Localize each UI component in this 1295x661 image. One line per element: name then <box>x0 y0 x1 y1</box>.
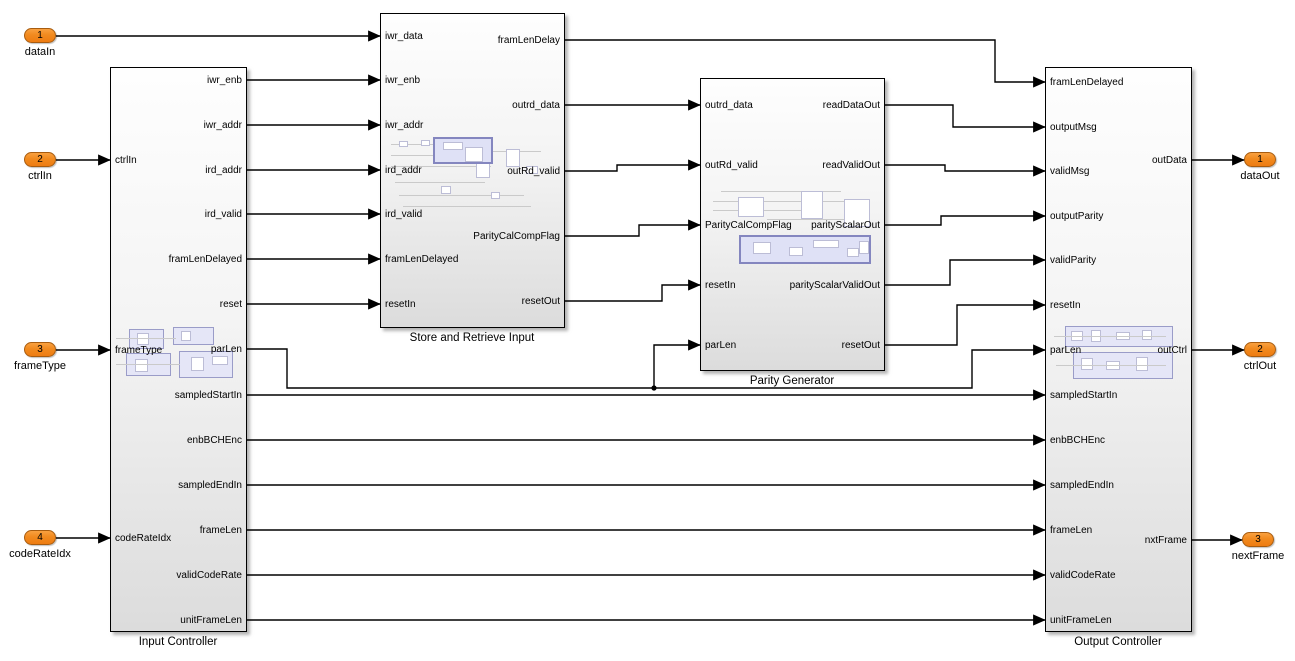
port-label-outrd_data: outrd_data <box>512 101 560 111</box>
block-caption-store-and-retrieve-input: Store and Retrieve Input <box>410 332 535 344</box>
inport-frameType[interactable]: 3 <box>24 342 56 357</box>
port-label-resetOut: resetOut <box>522 297 560 307</box>
port-label-parLen: parLen <box>211 345 242 355</box>
port-label-readValidOut: readValidOut <box>822 161 880 171</box>
wire-resetOut-to-parity[interactable] <box>565 285 700 301</box>
subsystem-preview-wire <box>116 364 180 365</box>
subsystem-preview-box <box>859 241 869 254</box>
port-label-outputMsg: outputMsg <box>1050 123 1097 133</box>
port-label-parityScalarValidOut: parityScalarValidOut <box>790 281 880 291</box>
block-caption-input-controller: Input Controller <box>139 636 218 648</box>
subsystem-preview-box <box>212 356 228 365</box>
port-label-resetIn: resetIn <box>705 281 736 291</box>
wire-outRd_valid[interactable] <box>565 165 700 171</box>
subsystem-preview-box <box>1136 357 1148 371</box>
port-label-iwr_addr: iwr_addr <box>385 121 423 131</box>
inport-label-dataIn: dataIn <box>25 46 56 58</box>
subsystem-preview-box <box>399 141 408 147</box>
inport-dataIn[interactable]: 1 <box>24 28 56 43</box>
outport-number: 1 <box>1257 155 1263 165</box>
port-label-unitFrameLen: unitFrameLen <box>1050 616 1112 626</box>
subsystem-preview-box <box>813 240 839 248</box>
port-label-ird_valid: ird_valid <box>205 210 242 220</box>
wire-ParityCalCompFlag[interactable] <box>565 225 700 236</box>
port-label-sampledEndIn: sampledEndIn <box>1050 481 1114 491</box>
subsystem-preview-wire <box>1054 336 1166 337</box>
port-label-outRd_valid: outRd_valid <box>705 161 758 171</box>
port-label-outrd_data: outrd_data <box>705 101 753 111</box>
subsystem-preview-box <box>181 331 191 341</box>
subsystem-preview-wire <box>403 206 531 207</box>
inport-number: 2 <box>37 155 43 165</box>
inport-ctrlIn[interactable]: 2 <box>24 152 56 167</box>
inport-label-frameType: frameType <box>14 360 66 372</box>
port-label-framLenDelay: framLenDelay <box>498 36 560 46</box>
subsystem-preview-box <box>137 333 149 345</box>
port-label-validMsg: validMsg <box>1050 167 1089 177</box>
subsystem-preview-wire <box>391 155 439 156</box>
subsystem-preview-wire <box>1056 365 1166 366</box>
port-label-outCtrl: outCtrl <box>1158 346 1187 356</box>
outport-dataOut[interactable]: 1 <box>1244 152 1276 167</box>
wire-junction-dot <box>651 385 656 390</box>
port-label-iwr_enb: iwr_enb <box>385 76 420 86</box>
outport-nextFrame[interactable]: 3 <box>1242 532 1274 547</box>
outport-label-ctrlOut: ctrlOut <box>1244 360 1276 372</box>
wire-framLenDelay[interactable] <box>565 40 1045 82</box>
wire-readValidOut[interactable] <box>885 165 1045 171</box>
outport-label-dataOut: dataOut <box>1240 170 1279 182</box>
port-label-frameType: frameType <box>115 346 162 356</box>
port-label-enbBCHEnc: enbBCHEnc <box>187 436 242 446</box>
port-label-resetIn: resetIn <box>385 300 416 310</box>
port-label-validParity: validParity <box>1050 256 1096 266</box>
wire-parityScalarOut[interactable] <box>885 216 1045 225</box>
subsystem-preview-wire <box>116 338 176 339</box>
block-parity-generator[interactable]: outrd_data outRd_valid ParityCalCompFlag… <box>700 78 885 371</box>
port-label-ird_addr: ird_addr <box>385 166 422 176</box>
port-label-outRd_valid: outRd_valid <box>507 167 560 177</box>
wire-parityScalarValidOut[interactable] <box>885 260 1045 285</box>
subsystem-preview-wire <box>713 201 858 202</box>
port-label-readDataOut: readDataOut <box>823 101 880 111</box>
port-label-sampledEndIn: sampledEndIn <box>178 481 242 491</box>
inport-number: 4 <box>37 533 43 543</box>
wire-resetOut-to-output-controller[interactable] <box>885 305 1045 345</box>
inport-label-codeRateIdx: codeRateIdx <box>9 548 71 560</box>
subsystem-preview-box <box>738 197 764 217</box>
wire-readDataOut[interactable] <box>885 105 1045 127</box>
subsystem-preview-box <box>789 247 803 256</box>
subsystem-preview-box <box>441 186 451 194</box>
subsystem-preview-wire <box>399 195 524 196</box>
block-caption-output-controller: Output Controller <box>1074 636 1162 648</box>
port-label-codeRateIdx: codeRateIdx <box>115 534 171 544</box>
outport-ctrlOut[interactable]: 2 <box>1244 342 1276 357</box>
subsystem-preview-box <box>847 248 859 257</box>
subsystem-preview-box <box>465 147 483 162</box>
inport-label-ctrlIn: ctrlIn <box>28 170 52 182</box>
block-output-controller[interactable]: framLenDelayed outputMsg validMsg output… <box>1045 67 1192 632</box>
port-label-reset: reset <box>220 300 242 310</box>
wire-parLen-to-parity-generator[interactable] <box>654 345 700 388</box>
subsystem-preview-box <box>801 191 823 219</box>
subsystem-preview-wire <box>395 182 485 183</box>
port-label-framLenDelayed: framLenDelayed <box>1050 78 1123 88</box>
port-label-iwr_data: iwr_data <box>385 32 423 42</box>
port-label-framLenDelayed: framLenDelayed <box>169 255 242 265</box>
port-label-iwr_addr: iwr_addr <box>204 121 242 131</box>
subsystem-preview-box <box>443 142 463 150</box>
port-label-unitFrameLen: unitFrameLen <box>180 616 242 626</box>
port-label-resetIn: resetIn <box>1050 301 1081 311</box>
subsystem-preview-box <box>135 359 148 372</box>
port-label-ParityCalCompFlag: ParityCalCompFlag <box>473 232 560 242</box>
port-label-frameLen: frameLen <box>1050 526 1092 536</box>
port-label-nxtFrame: nxtFrame <box>1145 536 1187 546</box>
port-label-parLen: parLen <box>1050 346 1081 356</box>
inport-number: 3 <box>37 345 43 355</box>
wire-parLen-trunk[interactable] <box>247 349 654 388</box>
subsystem-preview-box <box>1081 358 1093 370</box>
subsystem-preview-box <box>506 149 520 167</box>
port-label-resetOut: resetOut <box>842 341 880 351</box>
port-label-parityScalarOut: parityScalarOut <box>811 221 880 231</box>
port-label-sampledStartIn: sampledStartIn <box>1050 391 1117 401</box>
port-label-validCodeRate: validCodeRate <box>1050 571 1116 581</box>
subsystem-preview-box <box>1142 330 1152 340</box>
port-label-framLenDelayed: framLenDelayed <box>385 255 458 265</box>
subsystem-preview-box <box>421 140 430 146</box>
inport-number: 1 <box>37 31 43 41</box>
port-label-outData: outData <box>1152 156 1187 166</box>
subsystem-preview-highlight <box>433 137 493 164</box>
subsystem-preview-box <box>753 242 771 254</box>
inport-codeRateIdx[interactable]: 4 <box>24 530 56 545</box>
port-label-enbBCHEnc: enbBCHEnc <box>1050 436 1105 446</box>
port-label-outputParity: outputParity <box>1050 212 1103 222</box>
model-canvas: ctrlIn frameType codeRateIdx iwr_enb iwr… <box>0 0 1295 661</box>
outport-label-nextFrame: nextFrame <box>1232 550 1285 562</box>
port-label-frameLen: frameLen <box>200 526 242 536</box>
subsystem-preview-box <box>191 357 204 371</box>
port-label-validCodeRate: validCodeRate <box>176 571 242 581</box>
block-input-controller[interactable]: ctrlIn frameType codeRateIdx iwr_enb iwr… <box>110 67 247 632</box>
block-store-and-retrieve-input[interactable]: iwr_data iwr_enb iwr_addr ird_addr ird_v… <box>380 13 565 328</box>
subsystem-preview-box <box>491 192 500 199</box>
outport-number: 3 <box>1255 535 1261 545</box>
block-caption-parity-generator: Parity Generator <box>750 375 834 387</box>
port-label-sampledStartIn: sampledStartIn <box>175 391 242 401</box>
subsystem-preview-box <box>173 327 214 345</box>
port-label-parLen: parLen <box>705 341 736 351</box>
subsystem-preview-wire <box>721 191 841 192</box>
port-label-ctrlIn: ctrlIn <box>115 156 137 166</box>
port-label-iwr_enb: iwr_enb <box>207 76 242 86</box>
outport-number: 2 <box>1257 345 1263 355</box>
port-label-ird_addr: ird_addr <box>205 166 242 176</box>
port-label-ParityCalCompFlag: ParityCalCompFlag <box>705 221 792 231</box>
port-label-ird_valid: ird_valid <box>385 210 422 220</box>
